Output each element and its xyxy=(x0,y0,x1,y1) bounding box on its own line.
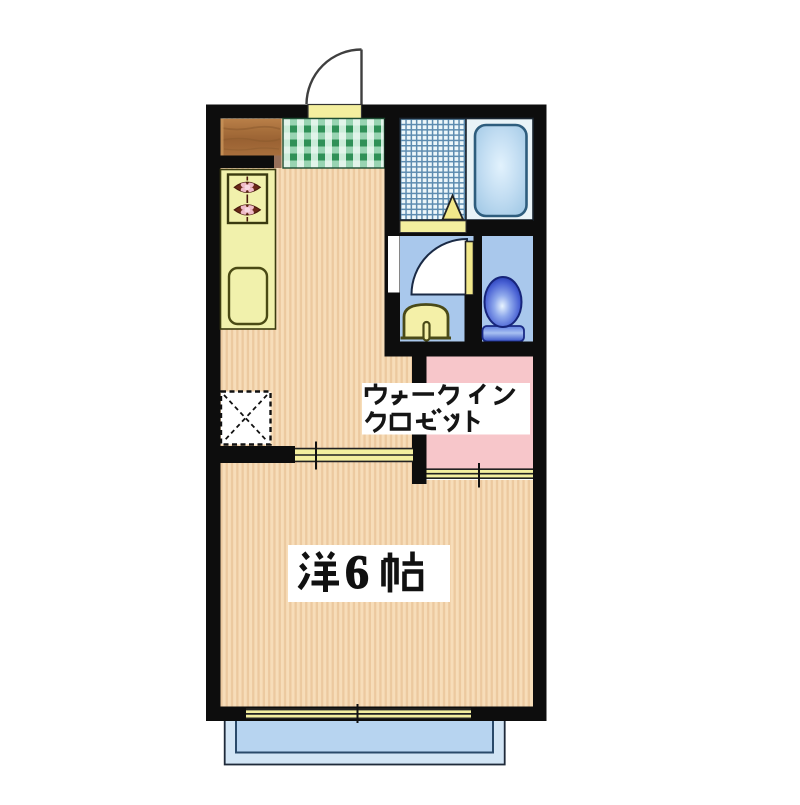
svg-text:6: 6 xyxy=(345,546,369,599)
